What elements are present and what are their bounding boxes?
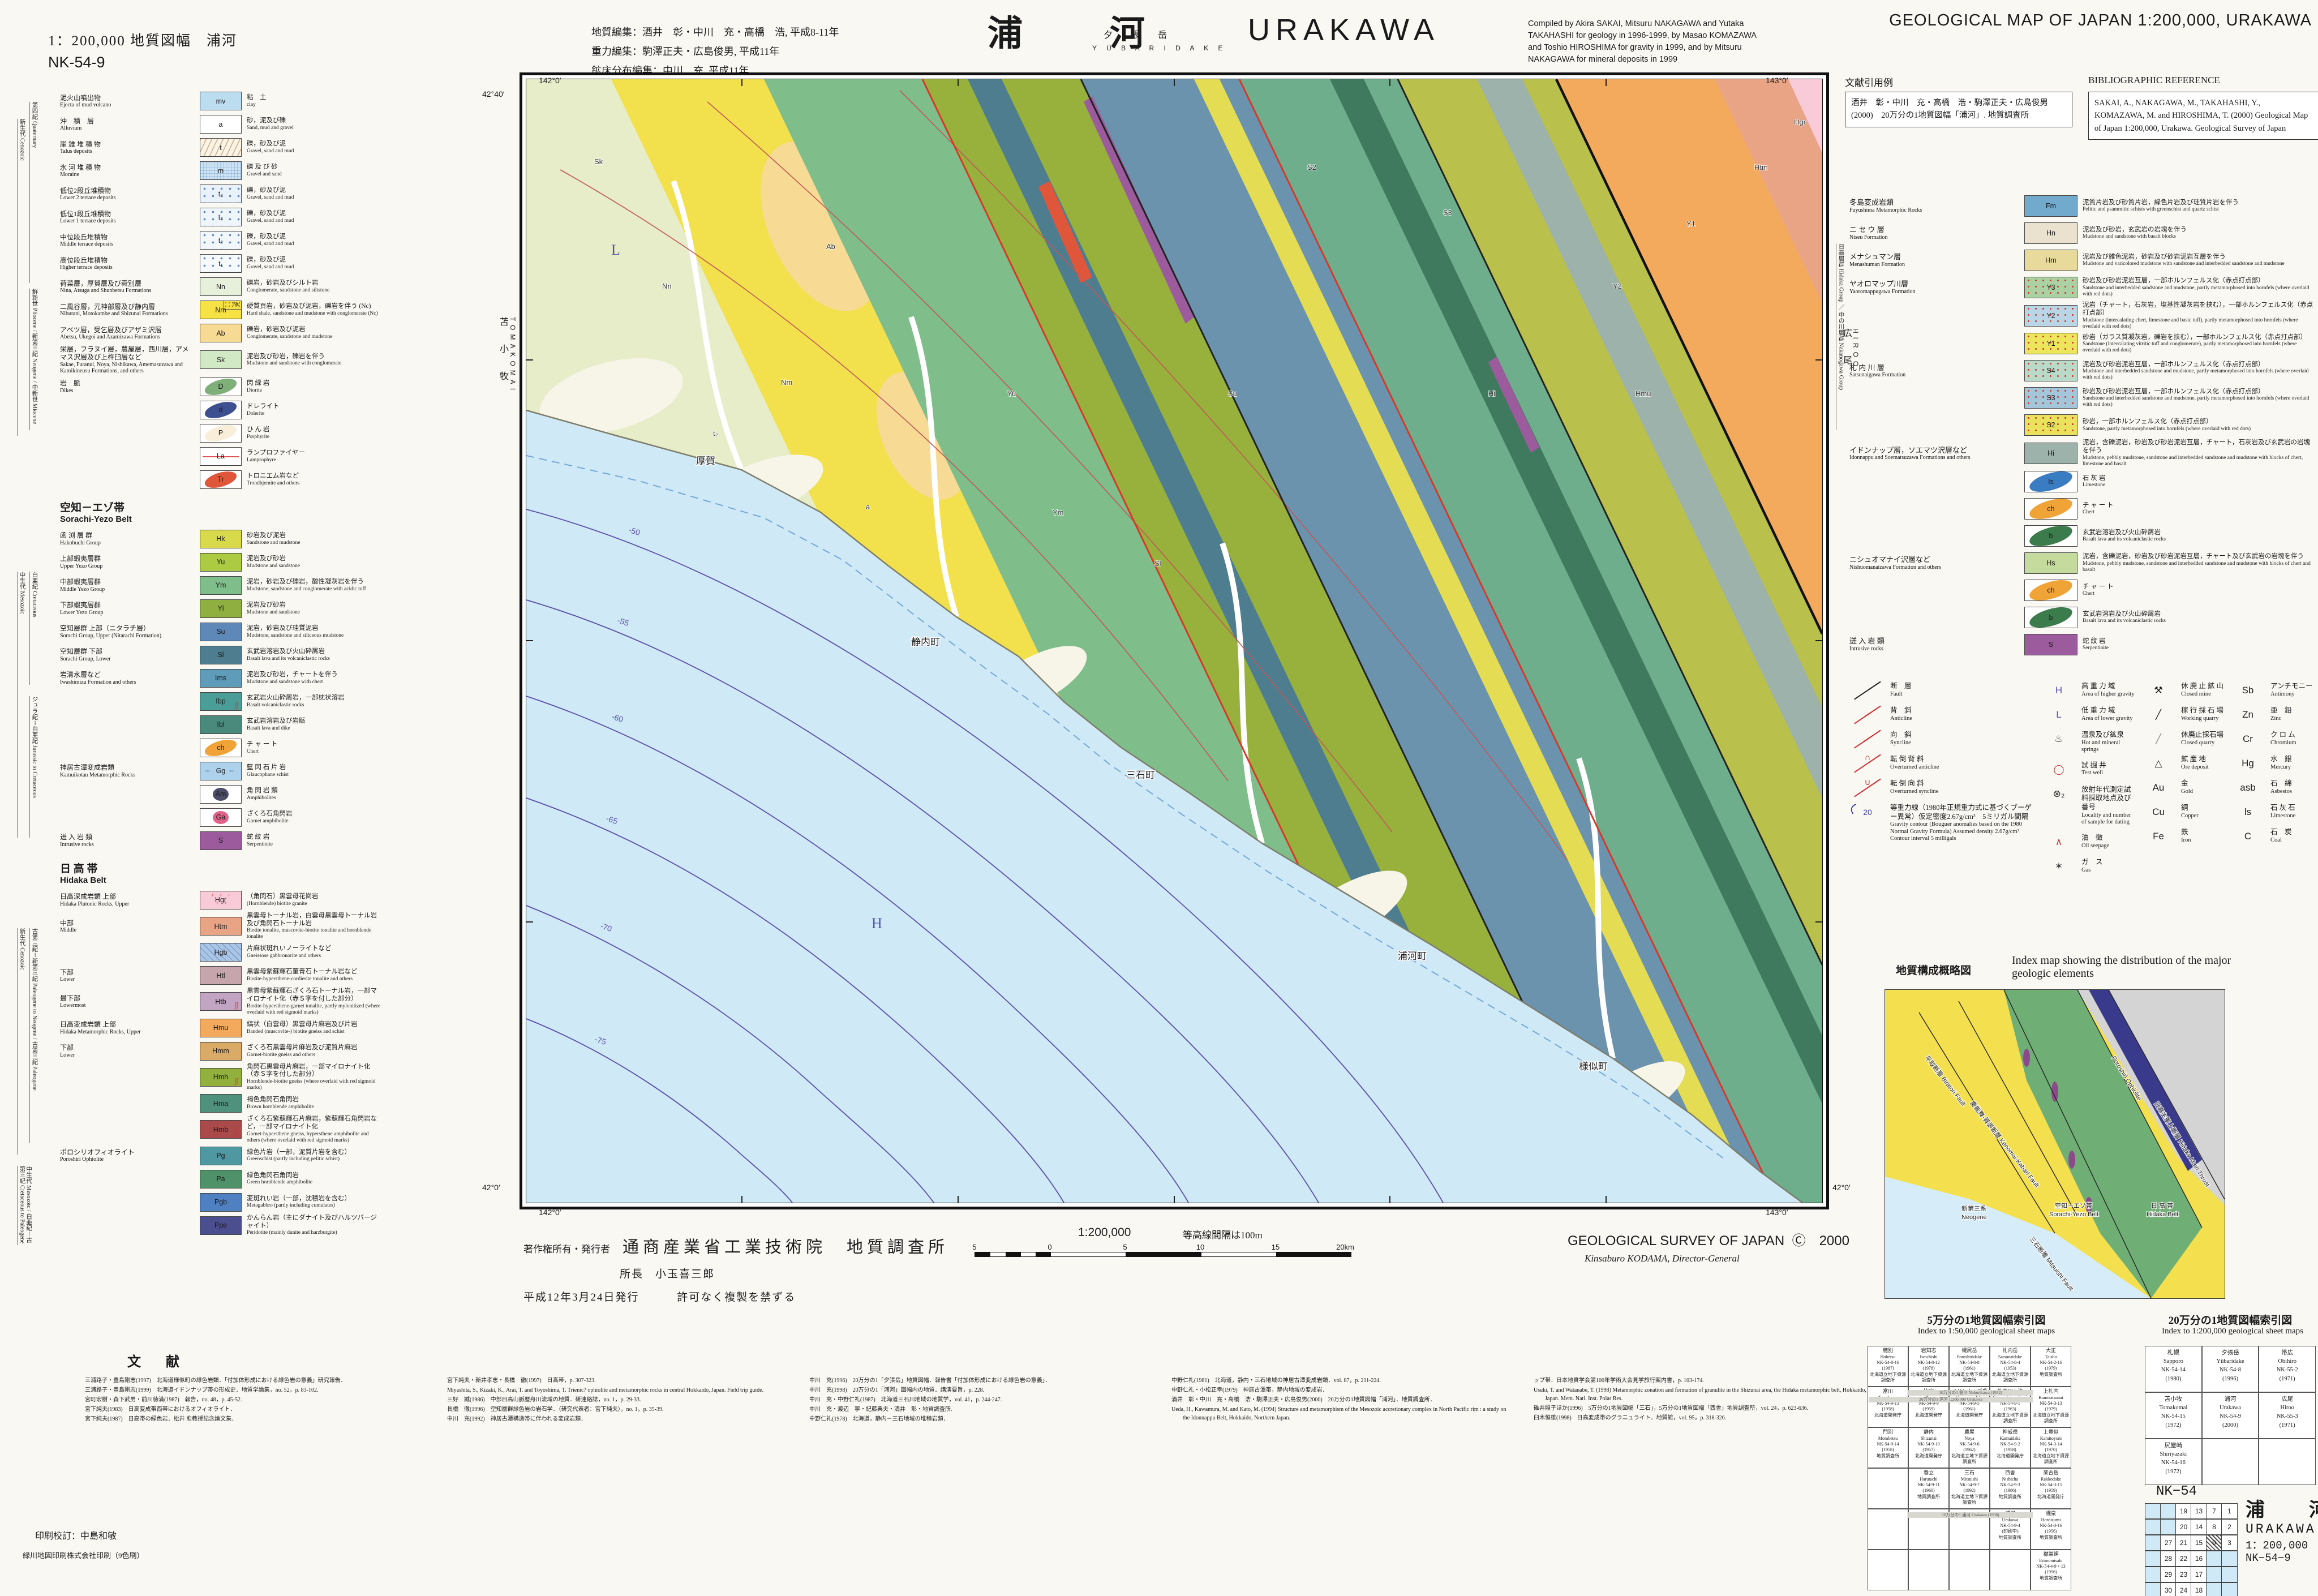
unit-name-ja: 二風谷層，元神部層及び静内層	[60, 303, 195, 311]
legend-row: 神居古潭変成岩類 Kamuikotan Metamorphic Rocks Gg…	[60, 760, 383, 783]
unit-code: Ims	[215, 674, 226, 682]
symbol-en: Gravity contour (Bouguer anomalies based…	[1890, 821, 2036, 843]
unit-code: Hmu	[213, 1024, 228, 1032]
svg-text:Hidaka Belt: Hidaka Belt	[2147, 1211, 2178, 1218]
lithology: 泥岩及び砂岩，礫岩を伴う Mudstone and sandstone with…	[247, 353, 383, 367]
symbol-en: Area of higher gravity	[2081, 691, 2135, 698]
legend-swatch: Ga	[200, 808, 242, 827]
legend-row: 岩清水層など Iwashimizu Formation and others I…	[60, 667, 383, 690]
lithology-ja: 泥岩及び砂岩泥岩互層，一部ホルンフェルス化（赤点打点部）	[2083, 361, 2315, 369]
lithology: 礫，砂及び泥 Gravel, sand and mud	[247, 233, 383, 247]
symbol-row: ✶ ガ ス Gas	[2041, 858, 2136, 875]
unit-name: ニシュオマナイ沢層など Nishuomanaizawa Formation an…	[1849, 555, 2019, 570]
unit-name-ja: 中部	[60, 919, 195, 927]
symbol-icon: Au	[2140, 779, 2177, 796]
unit-name: 荷菜層，厚賀層及び舜別層 Nina, Atsuga and Shunbetsu …	[60, 280, 195, 294]
symbol-row: Hg 水 銀 Mercury	[2230, 755, 2315, 772]
lithology-en: Mudstone, sandstone and conglomerate wit…	[247, 586, 383, 593]
lithology: 角 閃 岩 類 Amphibolites	[247, 787, 383, 801]
unit-code: Hgr	[215, 896, 226, 904]
unit-code: Hs	[2046, 559, 2055, 567]
lithology-en: Mudstone and sandstone with basalt block…	[2083, 234, 2315, 240]
lithology-ja: チ ャ ー ト	[2083, 502, 2315, 510]
lithology-en: Sandstone and interbedded sandstone and …	[2083, 285, 2315, 298]
lithology: チ ャ ー ト Chert	[247, 741, 383, 755]
lithology-en: Limestone	[2083, 482, 2315, 488]
symbol-en: Copper	[2181, 813, 2199, 820]
lithology-en: Conglomerate, sandstone and siltstone	[247, 288, 383, 294]
symbol-row: Cr ク ロ ム Chromium	[2230, 731, 2315, 748]
symbol-text: 銅 Copper	[2181, 804, 2199, 820]
lithology-ja: 玄武岩火山砕屑岩，一部枕状溶岩	[247, 694, 383, 702]
legend-sorachi: 函 渕 層 群 Hakobuchi Group Hk 砂岩及び泥岩 Sandst…	[60, 527, 383, 852]
lithology: （角閃石）黒雲母花崗岩 (Hornblende) biotite granite	[247, 893, 383, 907]
era-label: 新生代 Cenozoic	[17, 119, 25, 436]
legend-row: 下部 Lower Hmm ざくろ石黒雲母片麻岩及び泥質片麻岩 Garnet-bi…	[60, 1040, 383, 1063]
lithology: 玄武岩溶岩及び岩脈 Basalt lava and dike	[247, 718, 383, 732]
sheet-series-label: 1：200,000 地質図幅 浦河	[48, 29, 237, 50]
lithology-en: Biotite-hypersthene-garnet tonalite, par…	[247, 1003, 383, 1016]
index-map-figure: 平取断層 Biratori Fault 慶能舞-賀張断層 Kenomai-Kab…	[1885, 990, 2225, 1298]
lithology: 石 灰 岩 Limestone	[2083, 475, 2315, 489]
legend-swatch: d	[200, 401, 242, 419]
reference-entry: 中野仁礼(1978) 北海道，静内－三石地域の堆積岩類．	[809, 1415, 1149, 1423]
unit-name: 中位段丘堆積物 Middle terrace deposits	[60, 233, 195, 248]
lithology-en: Garnet-biotite gneiss and others	[247, 1052, 383, 1058]
lithology-ja: 礫，砂及び泥	[247, 187, 383, 195]
legend-row: b 玄武岩溶岩及び火山砕屑岩 Basalt lava and its volca…	[1849, 604, 2315, 631]
contour-interval-note: 等高線間隔は100m	[1183, 1227, 1263, 1241]
symbol-ja: 亜 鉛	[2270, 706, 2292, 715]
symbol-row: △ 鉱 産 地 Ore deposit	[2140, 755, 2225, 772]
svg-text:t₂: t₂	[713, 429, 718, 437]
symbols-points: H 高 重 力 域 Area of higher gravity L 低 重 力…	[2041, 682, 2136, 882]
legend-swatch: Yl	[200, 599, 242, 618]
legend-swatch: La	[200, 447, 242, 466]
group-label-nakanogawa: 日高層群 Hidaka Group ／ 中の川層群 Nakanogawa Gro…	[1836, 243, 1844, 430]
corner-lon-bl: 142°0′	[539, 1208, 561, 1217]
legend-row: 栄層，フラヌイ層，農屋層，西川層，アメマス沢層及び上杵臼層など Sakae, F…	[60, 345, 383, 375]
symbols-mines: ⚒ 休 廃 止 鉱 山 Closed mine ╱ 稼 行 採 石 場 Work…	[2140, 682, 2225, 852]
lithology-ja: 礫，砂及び泥	[247, 210, 383, 218]
unit-code: Sk	[217, 356, 225, 364]
lithology: 縞状（白雲母）黒雲母片麻岩及び片岩 Banded (muscovite-) bi…	[247, 1021, 383, 1035]
lithology-ja: 泥岩及び雑色泥岩，砂岩及び砂岩泥岩互層を伴う	[2083, 254, 2315, 261]
index50k-caption-noborikawa: 10万分の1 登川 Noborikawa (1932)	[1908, 1390, 2033, 1396]
symbol-text: 金 Gold	[2181, 779, 2193, 795]
svg-text:Neogene: Neogene	[1961, 1214, 1987, 1221]
adjacent-sheet-left-en: TOMAKOMAI	[509, 317, 517, 394]
legend-swatch: Hn	[2024, 222, 2077, 244]
index50k-row: 襟裳岬ErimomisakiNK-54-4-9・13(1956)地質調査所	[1868, 1550, 2071, 1590]
lithology-ja: 砂岩及び砂岩泥岩互層，一部ホルンフェルス化（赤点打点部）	[2083, 277, 2315, 285]
lithology-ja: 泥岩，含礫泥岩，砂岩及び砂岩泥岩互層，チャート，石灰岩及び玄武岩の岩塊を伴う	[2083, 439, 2315, 455]
lithology: ざくろ石角閃岩 Garnet amphibolite	[247, 810, 383, 825]
symbol-en: Chromium	[2270, 740, 2296, 747]
lithology-ja: 砂岩，一部ホルンフェルス化（赤点打点部）	[2083, 418, 2315, 426]
corner-lon-br: 143°0′	[1766, 1208, 1788, 1217]
symbol-en: Overturned syncline	[1890, 788, 1938, 796]
mineral-symbols: Sb アンチモニー Antimony Zn 亜 鉛 Zinc Cr ク ロ ム …	[2230, 682, 2315, 845]
unit-name-ja: 空知層群 下部	[60, 647, 195, 655]
lithology-ja: 泥岩及び砂岩，玄武岩の岩塊を伴う	[2083, 226, 2315, 234]
lithology-ja: 泥岩及び砂岩	[247, 602, 383, 610]
credit-gravity: 重力編集：駒澤正夫・広島俊男, 平成11年	[591, 42, 886, 61]
legend-swatch: Hmh	[200, 1068, 242, 1087]
index200k-table: 札幌SapporoNK-54-14(1980) 夕張岳YūbaridakeNK-…	[2145, 1346, 2316, 1485]
lithology: 礫，砂及び泥 Gravel, sand and mud	[247, 187, 383, 201]
lithology-ja: 玄武岩溶岩及び岩脈	[247, 718, 383, 726]
unit-name-en: Hakobuchi Group	[60, 540, 195, 547]
symbol-ja: 等重力線（1980年正規重力式に基づくブーゲー異常）仮定密度2.67g/cm³ …	[1890, 804, 2036, 821]
symbol-icon: Sb	[2230, 682, 2266, 699]
reference-entry: 宮町宏樹・森下武男・前川徳満(1987) 報告，no. 48，p. 45-52.	[85, 1396, 424, 1404]
symbol-en: Mercury	[2270, 764, 2292, 771]
symbol-ja: 断 層	[1890, 682, 1912, 691]
symbol-en: Asbestos	[2270, 788, 2292, 796]
symbol-text: 休廃止採石場 Closed quarry	[2181, 731, 2223, 746]
unit-name-ja: 荷菜層，厚賀層及び舜別層	[60, 280, 195, 288]
symbol-text: 水 銀 Mercury	[2270, 755, 2292, 771]
lithology-ja: 泥岩（チャート，石灰岩，塩基性凝灰岩を挟む），一部ホルンフェルス化（赤点打点部）	[2083, 302, 2315, 318]
lithology: チ ャ ー ト Chert	[2083, 584, 2315, 598]
unit-code: La	[217, 452, 225, 460]
lithology-ja: 蛇 紋 岩	[2083, 638, 2315, 646]
svg-text:三石町: 三石町	[1126, 770, 1155, 780]
lithology: 片麻状斑れいノーライトなど Gneissose gabbronorite and…	[247, 945, 383, 959]
unit-name-ja: ニシュオマナイ沢層など	[1849, 555, 2019, 564]
unit-name: 二風谷層，元神部層及び静内層 Nibutani, Motokambe and S…	[60, 303, 195, 318]
legend-row: ch チ ャ ー ト Chert	[1849, 495, 2315, 522]
unit-name-ja: 沖 積 層	[60, 117, 195, 125]
unit-name-en: Alluvium	[60, 125, 195, 132]
legend-row: 岩 脈 Dikes D 閃 緑 岩 Diorite	[60, 375, 383, 398]
lithology-ja: 玄武岩溶岩及び火山砕屑岩	[2083, 529, 2315, 537]
symbols-structure: 断 層 Fault 背 斜 Anticline 向 斜 Syncline 転 倒…	[1849, 682, 2036, 850]
lithology-ja: （角閃石）黒雲母花崗岩	[247, 893, 383, 901]
symbol-row: ⚒ 休 廃 止 鉱 山 Closed mine	[2140, 682, 2225, 699]
gravity-high-label: H	[872, 915, 882, 932]
reference-entry: Ueda, H., Kawamura, M. and Kato, M. (199…	[1171, 1405, 1511, 1422]
page-title-en: URAKAWA	[1248, 12, 1440, 48]
unit-name-ja: 低位2段丘堆積物	[60, 187, 195, 195]
lithology: 礫岩，砂岩及び泥岩 Conglomerate, sandstone and mu…	[247, 326, 383, 340]
unit-code: a	[219, 121, 223, 128]
unit-name-en: Lower Yezo Group	[60, 610, 195, 616]
legend-row: 冬島変成岩類 Fuyushima Metamorphic Rocks Fm 泥質…	[1849, 192, 2315, 220]
lithology: 藍 閃 石 片 岩 Glaucophane schist	[247, 764, 383, 778]
unit-code: S4	[2046, 367, 2055, 375]
legend-row: 迸 入 岩 類 Intrusive rocks S 蛇 紋 岩 Serpenti…	[1849, 631, 2315, 658]
svg-text:浦河町: 浦河町	[1398, 951, 1427, 962]
reference-entry: 三好 誠(1986) 中部日高山脈歴舟川流域の地質．研連絡誌，no. 1，p. …	[447, 1396, 787, 1404]
unit-code: Hgb	[214, 949, 227, 956]
index50k-row: 春立HarutachiNK-54-9-11(1960)地質調査所 三石Mitsu…	[1868, 1468, 2071, 1509]
references-col-3: 中川 充(1996) 20万分の1「夕張岳」地質図幅．報告書「付加体形成における…	[809, 1376, 1149, 1425]
lithology-ja: 砂岩及び砂岩泥岩互層，一部ホルンフェルス化（赤点打点部）	[2083, 388, 2315, 396]
symbol-en: Limestone	[2270, 813, 2295, 820]
unit-code: Ab	[216, 329, 225, 337]
legend-row: ニ セ ウ 層 Niseu Formation Hn 泥岩及び砂岩，玄武岩の岩塊…	[1849, 220, 2315, 247]
symbol-en: Coal	[2270, 837, 2292, 844]
unit-code: Hi	[2047, 449, 2054, 457]
symbol-ja: 低 重 力 域	[2081, 706, 2133, 715]
footer-scale: 1:200,000	[1078, 1226, 1131, 1239]
legend-row: 低位1段丘堆積物 Lower 1 terrace deposits t₃ 礫，砂…	[60, 205, 383, 229]
left-legend: 泥火山噴出物 Ejecta of mud volcano mv 粘 土 clay…	[16, 89, 383, 1237]
lithology-ja: 角閃石黒雲母片麻岩，一部マイロナイト化（赤Ｓ字を付した部分）	[247, 1063, 383, 1079]
issue-date: 平成12年3月24日発行	[523, 1292, 639, 1303]
symbol-icon	[1849, 682, 1886, 699]
symbol-row: Cu 銅 Copper	[2140, 804, 2225, 821]
legend-row: Ibp 玄武岩火山砕屑岩，一部枕状溶岩 Basalt volcaniclasti…	[60, 690, 383, 713]
svg-text:Nm: Nm	[781, 378, 792, 387]
lithology-en: Gravel, sand and mud	[247, 148, 383, 155]
unit-name-en: Iwashimizu Formation and others	[60, 679, 195, 686]
legend-swatch: a	[200, 115, 242, 134]
lithology-ja: 粘 土	[247, 94, 383, 102]
corner-lat-bl: 42°0′	[482, 1183, 500, 1192]
unit-code: Hk	[216, 535, 225, 543]
symbol-text: アンチモニー Antimony	[2270, 682, 2313, 698]
unit-code: Ppe	[214, 1221, 227, 1229]
legend-swatch: Nn	[200, 277, 242, 296]
legend-row: Hma 褐色角閃石角閃岩 Brown hornblende amphibolit…	[60, 1092, 383, 1115]
unit-name-ja: ポロシリオフィオライト	[60, 1148, 195, 1156]
symbol-icon: ⊗₂	[2041, 786, 2077, 803]
reference-entry: 碓井照子ほか(1996) 5万分の1地質図幅「三石」，5万分の1地質図幅「西舎」…	[1534, 1404, 1873, 1413]
unit-code: ch	[2047, 505, 2054, 513]
legend-row: 二風谷層，元神部層及び静内層 Nibutani, Motokambe and S…	[60, 298, 383, 321]
unit-code: Su	[216, 628, 225, 636]
era-label: 古第三紀－新第三紀 Paleogene to Neogene / 古第三紀 Pa…	[29, 928, 38, 1143]
unit-code: ch	[217, 744, 224, 752]
legend-row: Ppe かんらん岩（主にダナイト及びハルツバージャイト） Peridotite …	[60, 1214, 383, 1237]
symbol-text: 温泉及び鉱泉 Hot and mineral springs	[2081, 731, 2136, 754]
legend-swatch: m	[200, 161, 242, 180]
index50k-caption-urakawa200k: 20万分の1 浦河 1:200,000 Urakawa	[1869, 1397, 2033, 1402]
unit-code: b	[2049, 613, 2053, 621]
lithology-ja: 泥質片岩及び砂質片岩，緑色片岩及び珪質片岩を伴う	[2083, 199, 2315, 207]
svg-text:Sk: Sk	[594, 157, 603, 166]
unit-name-en: Middle	[60, 927, 195, 934]
legend-swatch: Yu	[200, 553, 242, 572]
legend-swatch: Tr	[200, 470, 242, 489]
unit-name: 神居古潭変成岩類 Kamuikotan Metamorphic Rocks	[60, 763, 195, 778]
legend-row: 泥火山噴出物 Ejecta of mud volcano mv 粘 土 clay	[60, 89, 383, 113]
legend-row: 崖 錐 堆 積 物 Talus deposits t 礫，砂及び泥 Gravel…	[60, 136, 383, 159]
lithology-ja: 礫岩，砂岩及びシルト岩	[247, 280, 383, 288]
corner-lat-tl: 42°40′	[482, 89, 504, 98]
legend-swatch: Fm	[2024, 195, 2077, 217]
lithology-ja: 褐色角閃石角閃岩	[247, 1096, 383, 1104]
biblio-label-ja: 文献引用例	[1845, 75, 1893, 89]
symbol-ja: 石 灰 石	[2270, 804, 2295, 813]
corner-lon-tl: 142°0′	[539, 76, 561, 85]
lithology: 玄武岩溶岩及び火山砕屑岩 Basalt lava and its volcani…	[2083, 611, 2315, 625]
unit-name-en: Nibutani, Motokambe and Shizunai Formati…	[60, 311, 195, 318]
legend-swatch: Ims	[200, 669, 242, 688]
symbol-en: Hot and mineral springs	[2081, 740, 2136, 754]
lithology-en: Metagabbro (partly including cumulates)	[247, 1203, 383, 1209]
symbol-en: Closed quarry	[2181, 740, 2223, 747]
symbol-row: ⊗₂ 放射年代測定試料採取地点及び番号 Locality and number …	[2041, 786, 2136, 826]
lithology-ja: 泥岩，砂岩及び珪質泥岩	[247, 625, 383, 633]
unit-code: Gg	[216, 767, 226, 775]
issue-note: 許可なく複製を禁ずる	[677, 1292, 796, 1303]
legend-row: 中位段丘堆積物 Middle terrace deposits t₂ 礫，砂及び…	[60, 229, 383, 252]
lithology-en: Basalt lava and its volcaniclastic rocks	[2083, 537, 2315, 543]
era-label: 白亜紀 Cretaceous	[29, 572, 38, 685]
unit-name-en: Middle Yezo Group	[60, 586, 195, 593]
unit-name: 中部 Middle	[60, 919, 195, 934]
lithology-ja: 礫岩，砂岩及び泥岩	[247, 326, 383, 334]
symbol-icon: Zn	[2230, 706, 2266, 723]
lithology: 褐色角閃石角閃岩 Brown hornblende amphibolite	[247, 1096, 383, 1110]
lithology-en: Greenschist (partly including pelitic sc…	[247, 1156, 383, 1162]
symbol-icon: C	[2230, 828, 2266, 845]
symbol-row: Zn 亜 鉛 Zinc	[2230, 706, 2315, 723]
svg-text:様似町: 様似町	[1579, 1061, 1608, 1072]
lithology: 蛇 紋 岩 Serpentinite	[247, 834, 383, 848]
references-col-2: 宮下純夫・新井孝志・長橋 徹(1997) 日高帯，p. 307-323. Miy…	[447, 1376, 787, 1425]
unit-code: S	[2049, 641, 2053, 649]
symbol-ja: 鉱 産 地	[2181, 755, 2209, 764]
legend-swatch: Htm	[200, 917, 242, 936]
symbol-icon: Cu	[2140, 804, 2177, 821]
symbol-icon: ∧	[2041, 834, 2077, 851]
symbol-en: Antimony	[2270, 691, 2313, 698]
symbol-ja: 油 徴	[2081, 834, 2109, 843]
unit-code: Hma	[213, 1100, 228, 1108]
lithology-en: Garnet-hypersthene gneiss, hypersthene a…	[247, 1131, 383, 1144]
symbol-en: Gas	[2081, 867, 2103, 874]
lithology: 硬質頁岩，砂岩及び泥岩，礫岩を伴う (Nc) Hard shale, sands…	[247, 303, 383, 317]
lithology: 泥岩及び砂岩泥岩互層，一部ホルンフェルス化（赤点打点部） Mudstone an…	[2083, 361, 2315, 381]
section-heading-en: Sorachi-Yezo Belt	[60, 514, 383, 524]
unit-name: 日高変成岩類 上部 Hidaka Metamorphic Rocks, Uppe…	[60, 1020, 195, 1035]
unit-name-ja: 中部蝦夷層群	[60, 578, 195, 586]
legend-swatch: ch	[2024, 580, 2077, 601]
unit-name: 上部蝦夷層群 Upper Yezo Group	[60, 555, 195, 569]
lithology: 泥岩，砂岩及び礫岩，酸性凝灰岩を伴う Mudstone, sandstone a…	[247, 578, 383, 593]
lithology: 礫，砂及び泥 Gravel, sand and mud	[247, 140, 383, 155]
geological-map: -50 -55 -60 -65 -70 -75 H L Sk Nn Ab Nm …	[526, 79, 1822, 1203]
nk54-grid: 191371 201482 27211593 282216 292317 302…	[2145, 1503, 2237, 1596]
legend-swatch: Hma	[200, 1094, 242, 1113]
symbol-text: 油 徴 Oil seepage	[2081, 834, 2109, 850]
symbol-row: Fe 鉄 Iron	[2140, 828, 2225, 845]
legend-row: 低位2段丘堆積物 Lower 2 terrace deposits t₄ 礫，砂…	[60, 182, 383, 205]
lithology-ja: 礫，砂及び泥	[247, 256, 383, 264]
svg-text:Yu: Yu	[1007, 389, 1016, 398]
unit-code: t₂	[218, 237, 223, 244]
lithology-en: Gravel, sand and mud	[247, 195, 383, 201]
lithology: 粘 土 clay	[247, 94, 383, 108]
symbol-icon: ls	[2230, 804, 2266, 821]
lithology-ja: 変斑れい岩（一部，沈積岩を含む）	[247, 1195, 383, 1203]
symbol-row: 転 倒 背 斜 Overturned anticline	[1849, 755, 2036, 772]
index50k-caption-urakawa100k: 10万分の1 浦河 Urakawa (1938)	[1908, 1512, 2033, 1518]
legend-swatch: Ab	[200, 324, 242, 342]
legend-row: Ga ざくろ石角閃岩 Garnet amphibolite	[60, 806, 383, 829]
lithology: 礫，砂及び泥 Gravel, sand and mud	[247, 256, 383, 271]
reference-entry: 中川 充(1992) 神居古潭構造帯に伴われる変成岩類．	[447, 1415, 787, 1423]
era-label: 中生代 Mesozoic	[17, 572, 25, 838]
legend-row: La ランプロファイヤー Lamprophyre	[60, 445, 383, 468]
unit-name-ja: ヤオロマップ川層	[1849, 280, 2019, 289]
references-col-1: 三浦路子・豊島剛志(1997) 北海道様似町の緑色岩類．「付加体形成における緑色…	[85, 1376, 424, 1425]
legend-swatch: Am	[200, 785, 242, 804]
svg-text:Htm: Htm	[1754, 163, 1768, 171]
symbol-row: 断 層 Fault	[1849, 682, 2036, 699]
legend-row: ニシュオマナイ沢層など Nishuomanaizawa Formation an…	[1849, 550, 2315, 577]
symbol-icon: ╱	[2140, 706, 2177, 723]
lithology-en: Mudstone and sandstone with chert	[247, 679, 383, 685]
unit-name-en: Lowermost	[60, 1002, 195, 1009]
sheet-name-en: URAKAWA	[2246, 1522, 2318, 1537]
reference-entry: ップ帯．日本地質学会第100年学術大会見学旅行案内書，p. 103-174.	[1534, 1376, 1873, 1385]
symbol-icon: ✶	[2041, 858, 2077, 875]
symbol-row: C 石 炭 Coal	[2230, 828, 2315, 845]
unit-code: Yu	[217, 558, 225, 566]
lithology: 砂岩，一部ホルンフェルス化（赤点打点部） Sandstone, partly m…	[2083, 418, 2315, 432]
unit-name-en: Yaoromappugawa Formation	[1849, 289, 2019, 295]
unit-name-en: Middle terrace deposits	[60, 241, 195, 248]
lithology-en: Gravel and sand	[247, 171, 383, 178]
symbol-text: 背 斜 Anticline	[1890, 706, 1912, 722]
references-title: 文 献	[127, 1350, 185, 1370]
lithology: 泥岩及び雑色泥岩，砂岩及び砂岩泥岩互層を伴う Mudstone and vari…	[2083, 254, 2315, 268]
svg-text:a: a	[866, 503, 870, 511]
symbol-text: 稼 行 採 石 場 Working quarry	[2181, 706, 2223, 722]
legend-row: 空知層群 下部 Sorachi Group, Lower Sl 玄武岩溶岩及び火…	[60, 643, 383, 667]
symbol-row: ∧ 油 徴 Oil seepage	[2041, 834, 2136, 851]
legend-row: 下部蝦夷層群 Lower Yezo Group Yl 泥岩及び砂岩 Mudsto…	[60, 597, 383, 620]
legend-swatch: Gg	[200, 762, 242, 780]
lithology: 砂岩及び泥岩 Sandstone and mudstone	[247, 532, 383, 546]
symbol-row: 20 等重力線（1980年正規重力式に基づくブーゲー異常）仮定密度2.67g/c…	[1849, 804, 2036, 843]
reference-entry: 三浦路子・豊島剛志(1997) 北海道様似町の緑色岩類．「付加体形成における緑色…	[85, 1376, 424, 1385]
unit-name: 岩清水層など Iwashimizu Formation and others	[60, 671, 195, 685]
legend-row: 中部蝦夷層群 Middle Yezo Group Ym 泥岩，砂岩及び礫岩，酸性…	[60, 574, 383, 597]
copyright-year: Ⓒ 2000	[1792, 1233, 1849, 1249]
unit-name-ja: 低位1段丘堆積物	[60, 210, 195, 218]
unit-name-en: Hidaka Metamorphic Rocks, Upper	[60, 1029, 195, 1036]
unit-name-ja: 泥火山噴出物	[60, 94, 195, 102]
symbol-icon: ╱	[2140, 731, 2177, 748]
symbol-text: 休 廃 止 鉱 山 Closed mine	[2181, 682, 2223, 698]
unit-name-en: Talus deposits	[60, 148, 195, 155]
symbol-text: 石 灰 石 Limestone	[2270, 804, 2295, 820]
symbol-ja: 転 倒 背 斜	[1890, 755, 1939, 764]
biblio-label-en: BIBLIOGRAPHIC REFERENCE	[2088, 75, 2220, 86]
symbol-text: ク ロ ム Chromium	[2270, 731, 2296, 746]
lithology-en: Banded (muscovite-) biotite gneiss and s…	[247, 1029, 383, 1035]
symbol-en: Test well	[2081, 770, 2106, 777]
legend-row: ポロシリオフィオライト Poroshiri Ophiolite Pg 緑色片岩（…	[60, 1144, 383, 1168]
lithology-ja: チ ャ ー ト	[247, 741, 383, 749]
lithology-en: Biotite tonalite, muscovite-biotite tona…	[247, 928, 383, 940]
lithology-en: Gravel, sand and mud	[247, 241, 383, 247]
legend-swatch: ch	[2024, 498, 2077, 520]
era-label: 中生代 Mesozoic / 白亜紀－古第三紀 Cretaceous to Pa…	[17, 1166, 32, 1245]
unit-code: Nm	[215, 306, 226, 314]
unit-code: Nn	[216, 283, 225, 291]
unit-name-ja: 迸 入 岩 類	[60, 833, 195, 841]
unit-name: 下部 Lower	[60, 968, 195, 983]
legend-swatch: t	[200, 138, 242, 157]
